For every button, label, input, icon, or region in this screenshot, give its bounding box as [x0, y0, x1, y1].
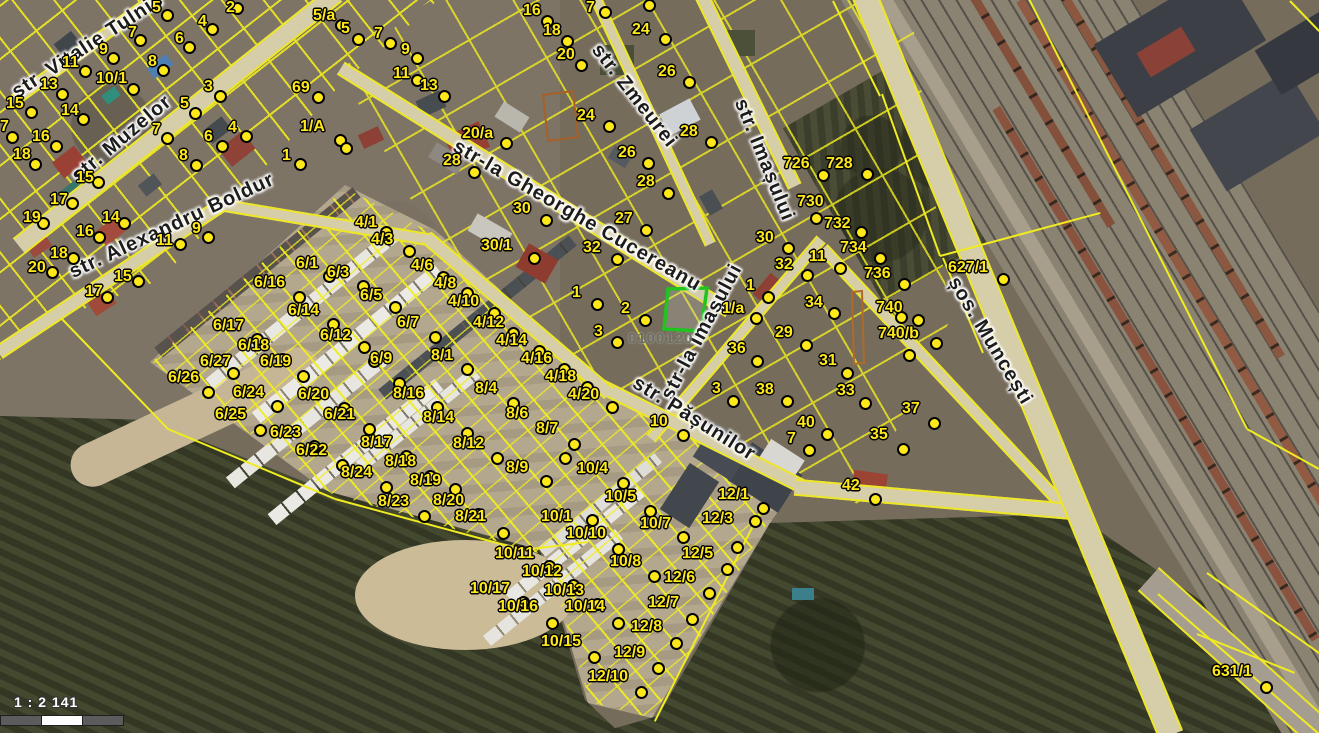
- parcel-number-label: 3: [594, 324, 603, 340]
- cadastral-boundary-line: [335, 498, 524, 551]
- parcel-marker-dot[interactable]: [834, 262, 847, 275]
- parcel-marker-dot[interactable]: [294, 158, 307, 171]
- freight-train: [992, 106, 1319, 642]
- parcel-number-label: 14: [102, 210, 120, 226]
- orange-parcel: [852, 291, 864, 364]
- parcel-number-label: 11: [62, 55, 79, 71]
- parcel-marker-dot[interactable]: [703, 587, 716, 600]
- parcel-marker-dot[interactable]: [588, 651, 601, 664]
- parcel-marker-dot[interactable]: [903, 349, 916, 362]
- parcel-number-label: 13: [40, 77, 58, 93]
- parcel-marker-dot[interactable]: [803, 444, 816, 457]
- parcel-marker-dot[interactable]: [782, 242, 795, 255]
- parcel-number-label: 2: [226, 0, 235, 16]
- railway-service-road: [802, 0, 1319, 732]
- cadastral-boundary-line: [168, 428, 336, 500]
- parcel-number-label: 728: [826, 156, 853, 172]
- street-name-label: str. Vitalie Tulnic: [8, 0, 168, 104]
- parcel-marker-dot[interactable]: [859, 397, 872, 410]
- parcel-marker-dot[interactable]: [683, 76, 696, 89]
- parcel-number-label: 8/7: [536, 421, 558, 437]
- parcel-number-label: 8: [179, 148, 188, 164]
- parcel-number-label: 12/9: [614, 645, 645, 661]
- parcel-number-label: 18: [50, 246, 68, 262]
- parcel-marker-dot[interactable]: [50, 140, 63, 153]
- parcel-marker-dot[interactable]: [500, 137, 513, 150]
- parcel-marker-dot[interactable]: [928, 417, 941, 430]
- parcel-number-label: 28: [680, 124, 698, 140]
- parcel-number-label: 6/27: [200, 354, 231, 370]
- parcel-number-label: 35: [870, 427, 888, 443]
- parcel-number-label: 8/1: [431, 348, 453, 364]
- parcel-number-label: 5: [341, 21, 350, 37]
- parcel-number-label: 20/a: [462, 126, 493, 142]
- parcel-number-label: 12/10: [588, 669, 628, 685]
- parcel-number-label: 37: [902, 401, 920, 417]
- parcel-marker-dot[interactable]: [161, 132, 174, 145]
- parcel-marker-dot[interactable]: [403, 245, 416, 258]
- parcel-marker-dot[interactable]: [930, 337, 943, 350]
- parcel-number-label: 6: [204, 129, 213, 145]
- parcel-marker-dot[interactable]: [721, 563, 734, 576]
- parcel-number-label: 12/3: [702, 511, 733, 527]
- parcel-number-label: 6/1: [296, 256, 318, 272]
- parcel-marker-dot[interactable]: [757, 502, 770, 515]
- parcel-number-label: 6/26: [168, 370, 199, 386]
- parcel-marker-dot[interactable]: [384, 37, 397, 50]
- industrial-building: [1190, 71, 1319, 192]
- parcel-marker-dot[interactable]: [749, 515, 762, 528]
- parcel-marker-dot[interactable]: [297, 370, 310, 383]
- parcel-marker-dot[interactable]: [751, 355, 764, 368]
- parcel-number-label: 24: [577, 108, 595, 124]
- parcel-number-label: 627/1: [948, 260, 988, 276]
- industrial-building-red-roof: [1137, 27, 1196, 78]
- parcel-marker-dot[interactable]: [25, 106, 38, 119]
- parcel-marker-dot[interactable]: [677, 531, 690, 544]
- parcel-marker-dot[interactable]: [271, 400, 284, 413]
- parcel-number-label: 4/12: [473, 315, 504, 331]
- parcel-marker-dot[interactable]: [606, 401, 619, 414]
- parcel-number-label: 631/1: [1212, 664, 1252, 680]
- parcel-number-label: 12/5: [682, 546, 713, 562]
- parcel-marker-dot[interactable]: [189, 107, 202, 120]
- parcel-number-label: 6/16: [254, 275, 285, 291]
- parcel-marker-dot[interactable]: [640, 224, 653, 237]
- scale-bar-segment: [83, 716, 124, 725]
- building-roof: [358, 126, 384, 149]
- parcel-number-label: 10/7: [640, 516, 671, 532]
- parcel-number-label: 4/6: [411, 258, 433, 274]
- parcel-number-label: 726: [783, 156, 810, 172]
- parcel-number-label: 7: [787, 431, 796, 447]
- parcel-number-label: 6/24: [233, 385, 264, 401]
- parcel-number-label: 10: [650, 414, 668, 430]
- parcel-number-label: 4/16: [521, 351, 552, 367]
- parcel-number-label: 13: [420, 78, 438, 94]
- scale-ratio-text: 1 : 2 141: [14, 694, 78, 710]
- parcel-marker-dot[interactable]: [659, 33, 672, 46]
- parcel-marker-dot[interactable]: [810, 212, 823, 225]
- parcel-number-label: 24: [632, 22, 650, 38]
- parcel-number-label: 4: [228, 120, 237, 136]
- parcel-number-label: 12/1: [718, 487, 749, 503]
- parcel-number-label: 6/12: [320, 328, 351, 344]
- parcel-marker-dot[interactable]: [352, 33, 365, 46]
- orange-parcel: [543, 91, 578, 141]
- parcel-marker-dot[interactable]: [677, 429, 690, 442]
- parcel-number-label: 26: [658, 64, 676, 80]
- parcel-number-label: 4/10: [448, 294, 479, 310]
- parcel-number-label: 6/20: [298, 387, 329, 403]
- parcel-marker-dot[interactable]: [898, 278, 911, 291]
- parcel-number-label: 8/14: [423, 410, 454, 426]
- parcel-number-label: 15: [114, 269, 132, 285]
- parcel-marker-dot[interactable]: [67, 252, 80, 265]
- parcel-number-label: 16: [76, 224, 94, 240]
- house-row: [356, 367, 481, 472]
- parcel-number-label: 10/1: [96, 71, 127, 87]
- parcel-number-label: 6/14: [288, 303, 319, 319]
- parcel-number-label: 34: [805, 295, 823, 311]
- parcel-marker-dot[interactable]: [801, 269, 814, 282]
- street-name-label: str. Zmeurei: [586, 40, 681, 153]
- parcel-number-label: 30: [513, 201, 531, 217]
- parcel-number-label: 3: [204, 79, 213, 95]
- parcel-number-label: 5/a: [313, 8, 335, 24]
- parcel-marker-dot[interactable]: [79, 65, 92, 78]
- parcel-marker-dot[interactable]: [206, 23, 219, 36]
- parcel-number-label: 29: [775, 325, 793, 341]
- parcel-number-label: 12/8: [631, 619, 662, 635]
- parcel-number-label: 8: [148, 54, 157, 70]
- parcel-number-label: 8/18: [385, 454, 416, 470]
- parcel-marker-dot[interactable]: [161, 9, 174, 22]
- parcel-number-label: 15: [6, 96, 24, 112]
- parcel-marker-dot[interactable]: [575, 59, 588, 72]
- parcel-number-label: 6/5: [360, 288, 382, 304]
- parcel-number-label: 12/6: [664, 570, 695, 586]
- parcel-number-label: 9: [99, 42, 108, 58]
- parcel-number-label: 7: [152, 122, 161, 138]
- parcel-marker-dot[interactable]: [240, 130, 253, 143]
- parcel-marker-dot[interactable]: [821, 428, 834, 441]
- parcel-marker-dot[interactable]: [157, 64, 170, 77]
- parcel-number-label: 10/16: [498, 599, 538, 615]
- parcel-marker-dot[interactable]: [559, 452, 572, 465]
- parcel-marker-dot[interactable]: [997, 273, 1010, 286]
- parcel-marker-dot[interactable]: [705, 136, 718, 149]
- parcel-marker-dot[interactable]: [1260, 681, 1273, 694]
- parcel-number-label: 10/11: [495, 546, 534, 562]
- cadastral-boundary-line: [61, 318, 168, 429]
- parcel-number-label: 8/20: [433, 493, 464, 509]
- parcel-marker-dot[interactable]: [781, 395, 794, 408]
- parcel-number-label: 740/b: [878, 326, 919, 342]
- parcel-marker-dot[interactable]: [639, 314, 652, 327]
- parcel-marker-dot[interactable]: [497, 527, 510, 540]
- parcel-marker-dot[interactable]: [874, 252, 887, 265]
- parcel-number-label: 11: [393, 66, 410, 82]
- parcel-number-label: 4/20: [568, 387, 599, 403]
- parcel-number-label: 8/12: [453, 436, 484, 452]
- parcel-marker-dot[interactable]: [648, 570, 661, 583]
- parcel-number-label: 736: [864, 266, 891, 282]
- parcel-marker-dot[interactable]: [429, 331, 442, 344]
- parcel-number-label: 10/5: [605, 489, 636, 505]
- parcel-number-label: 8/23: [378, 494, 409, 510]
- parcel-marker-dot[interactable]: [611, 336, 624, 349]
- parcel-marker-dot[interactable]: [312, 91, 325, 104]
- parcel-number-label: 18: [543, 23, 561, 39]
- building-roof: [101, 86, 120, 105]
- parcel-number-label: 14: [61, 103, 79, 119]
- parcel-number-label: 31: [819, 353, 837, 369]
- parcel-number-label: 30/1: [481, 238, 512, 254]
- parcel-number-label: 9: [192, 221, 201, 237]
- building-roof: [792, 588, 814, 600]
- building-roof: [699, 189, 723, 216]
- parcel-number-label: 1: [572, 285, 581, 301]
- parcel-marker-dot[interactable]: [358, 341, 371, 354]
- parcel-marker-dot[interactable]: [468, 166, 481, 179]
- parcel-number-label: 10/4: [577, 461, 608, 477]
- parcel-marker-dot[interactable]: [107, 52, 120, 65]
- parcel-marker-dot[interactable]: [389, 301, 402, 314]
- parcel-marker-dot[interactable]: [202, 386, 215, 399]
- building-roof: [138, 173, 162, 196]
- parcel-number-label: 28: [443, 153, 461, 169]
- parcel-number-label: 8/4: [475, 381, 497, 397]
- building-roof: [495, 101, 530, 132]
- cadastral-boundary-line: [1247, 428, 1319, 470]
- parcel-number-label: 10/12: [522, 564, 562, 580]
- parcel-number-label: 26: [618, 145, 636, 161]
- parcel-number-label: 730: [797, 194, 824, 210]
- parcel-number-label: 38: [756, 382, 774, 398]
- parcel-marker-dot[interactable]: [214, 90, 227, 103]
- parcel-number-label: 17: [50, 192, 68, 208]
- parcel-number-label: 30: [756, 230, 774, 246]
- parcel-marker-dot[interactable]: [897, 443, 910, 456]
- parcel-marker-dot[interactable]: [254, 424, 267, 437]
- parcel-id-label: 0100120: [628, 330, 693, 347]
- parcel-number-label: 7: [128, 25, 137, 41]
- road: [422, 231, 614, 398]
- parcel-marker-dot[interactable]: [670, 637, 683, 650]
- parcel-number-label: 6/9: [370, 351, 392, 367]
- parcel-marker-dot[interactable]: [731, 541, 744, 554]
- parcel-number-label: 734: [840, 240, 867, 256]
- parcel-number-label: 6/22: [296, 443, 327, 459]
- parcel-marker-dot[interactable]: [127, 83, 140, 96]
- railway-yard: [775, 0, 1319, 733]
- parcel-number-label: 27: [615, 211, 633, 227]
- parcel-marker-dot[interactable]: [750, 312, 763, 325]
- parcel-marker-dot[interactable]: [411, 52, 424, 65]
- parcel-marker-dot[interactable]: [491, 452, 504, 465]
- parcel-number-label: 20: [557, 47, 575, 63]
- parcel-number-label: 4: [198, 14, 207, 30]
- aerial-cadastral-map[interactable]: 0100120 5247698111310/115147161835697461…: [0, 0, 1319, 733]
- parcel-number-label: 8/9: [506, 460, 528, 476]
- parcel-number-label: 1/a: [722, 301, 744, 317]
- parcel-marker-dot[interactable]: [727, 395, 740, 408]
- parcel-number-label: 740: [876, 300, 903, 316]
- parcel-number-label: 3: [712, 381, 721, 397]
- parcel-marker-dot[interactable]: [528, 252, 541, 265]
- parcel-number-label: 10/1: [541, 509, 572, 525]
- parcel-number-label: 40: [797, 415, 815, 431]
- scale-bar-segment: [42, 716, 83, 725]
- parcel-marker-dot[interactable]: [132, 275, 145, 288]
- parcel-number-label: 2: [621, 301, 630, 317]
- parcel-marker-dot[interactable]: [841, 367, 854, 380]
- parcel-marker-dot[interactable]: [861, 168, 874, 181]
- parcel-number-label: 17: [85, 284, 103, 300]
- parcel-marker-dot[interactable]: [869, 493, 882, 506]
- parcel-number-label: 6: [175, 31, 184, 47]
- industrial-building: [1094, 0, 1266, 118]
- scale-indicator: 1 : 2 141: [0, 694, 150, 733]
- parcel-marker-dot[interactable]: [603, 120, 616, 133]
- parcel-marker-dot[interactable]: [540, 214, 553, 227]
- parcel-number-label: 4/14: [496, 333, 527, 349]
- parcel-number-label: 69: [292, 80, 310, 96]
- cadastral-boundary-line: [1027, 0, 1248, 429]
- parcel-marker-dot[interactable]: [762, 291, 775, 304]
- parcel-number-label: 8/21: [455, 509, 486, 525]
- parcel-marker-dot[interactable]: [216, 140, 229, 153]
- parcel-number-label: 36: [728, 341, 746, 357]
- parcel-marker-dot[interactable]: [611, 253, 624, 266]
- parcel-number-label: 5: [152, 0, 161, 16]
- parcel-marker-dot[interactable]: [461, 363, 474, 376]
- parcel-marker-dot[interactable]: [642, 157, 655, 170]
- parcel-marker-dot[interactable]: [612, 617, 625, 630]
- parcel-marker-dot[interactable]: [546, 617, 559, 630]
- parcel-number-label: 33: [837, 383, 855, 399]
- parcel-marker-dot[interactable]: [174, 238, 187, 251]
- parcel-marker-dot[interactable]: [380, 481, 393, 494]
- parcel-number-label: 18: [13, 147, 31, 163]
- parcel-number-label: 6/18: [238, 338, 269, 354]
- parcel-number-label: 11: [156, 233, 173, 249]
- scale-bar-segment: [1, 716, 42, 725]
- parcel-marker-dot[interactable]: [662, 187, 675, 200]
- parcel-number-label: 8/6: [506, 406, 528, 422]
- parcel-number-label: 16: [32, 129, 50, 145]
- parcel-number-label: 8/19: [410, 473, 441, 489]
- parcel-number-label: 7: [0, 119, 9, 135]
- parcel-marker-dot[interactable]: [46, 266, 59, 279]
- parcel-marker-dot[interactable]: [202, 231, 215, 244]
- parcel-marker-dot[interactable]: [183, 41, 196, 54]
- parcel-number-label: 732: [824, 216, 851, 232]
- parcel-number-label: 4/3: [371, 232, 393, 248]
- parcel-marker-dot[interactable]: [800, 339, 813, 352]
- parcel-number-label: 10/13: [544, 583, 584, 599]
- parcel-number-label: 8/17: [361, 435, 392, 451]
- parcel-marker-dot[interactable]: [828, 307, 841, 320]
- parcel-number-label: 10/14: [565, 599, 605, 615]
- parcel-number-label: 20: [28, 260, 46, 276]
- parcel-marker-dot[interactable]: [855, 226, 868, 239]
- parcel-marker-dot[interactable]: [591, 298, 604, 311]
- parcel-number-label: 28: [637, 174, 655, 190]
- parcel-marker-dot[interactable]: [635, 686, 648, 699]
- parcel-number-label: 6/7: [397, 315, 419, 331]
- parcel-number-label: 11: [809, 249, 826, 265]
- parcel-number-label: 32: [583, 240, 601, 256]
- parcel-number-label: 1: [746, 278, 755, 294]
- parcel-marker-dot[interactable]: [340, 142, 353, 155]
- parcel-number-label: 4/8: [434, 276, 456, 292]
- parcel-number-label: 6/23: [270, 425, 301, 441]
- parcel-number-label: 32: [775, 257, 793, 273]
- parcel-marker-dot[interactable]: [643, 0, 656, 12]
- parcel-number-label: 42: [842, 478, 860, 494]
- parcel-number-label: 4/1: [355, 215, 377, 231]
- parcel-number-label: 9: [401, 42, 410, 58]
- parcel-number-label: 10/8: [610, 554, 641, 570]
- parcel-number-label: 8/16: [393, 386, 424, 402]
- parcel-number-label: 7: [374, 26, 383, 42]
- parcel-number-label: 6/21: [324, 407, 355, 423]
- parcel-number-label: 12/7: [648, 595, 679, 611]
- parcel-marker-dot[interactable]: [686, 613, 699, 626]
- parcel-marker-dot[interactable]: [652, 662, 665, 675]
- parcel-number-label: 1/A: [300, 119, 325, 135]
- parcel-number-label: 1: [282, 148, 291, 164]
- road: [220, 198, 431, 246]
- freight-train: [1016, 0, 1319, 620]
- parcel-number-label: 5: [180, 96, 189, 112]
- parcel-marker-dot[interactable]: [93, 231, 106, 244]
- scale-bar: [0, 715, 124, 726]
- parcel-marker-dot[interactable]: [540, 475, 553, 488]
- parcel-number-label: 10/17: [470, 581, 510, 597]
- parcel-number-label: 6/17: [213, 318, 244, 334]
- parcel-marker-dot[interactable]: [418, 510, 431, 523]
- parcel-marker-dot[interactable]: [568, 438, 581, 451]
- parcel-number-label: 6/25: [215, 407, 246, 423]
- parcel-marker-dot[interactable]: [190, 159, 203, 172]
- parcel-number-label: 6/3: [327, 265, 349, 281]
- parcel-marker-dot[interactable]: [438, 90, 451, 103]
- parcel-number-label: 6/19: [260, 354, 291, 370]
- parcel-number-label: 8/24: [341, 465, 372, 481]
- cadastral-boundary-line: [1289, 0, 1319, 31]
- parcel-number-label: 4/18: [545, 369, 576, 385]
- parcel-number-label: 15: [76, 170, 94, 186]
- cadastral-boundary-line: [654, 506, 764, 722]
- parcel-number-label: 10/15: [541, 634, 581, 650]
- parcel-marker-dot[interactable]: [599, 6, 612, 19]
- parcel-number-label: 19: [23, 210, 41, 226]
- parcel-number-label: 10/10: [566, 526, 606, 542]
- parcel-number-label: 16: [523, 3, 541, 19]
- parcel-number-label: 7: [586, 0, 595, 16]
